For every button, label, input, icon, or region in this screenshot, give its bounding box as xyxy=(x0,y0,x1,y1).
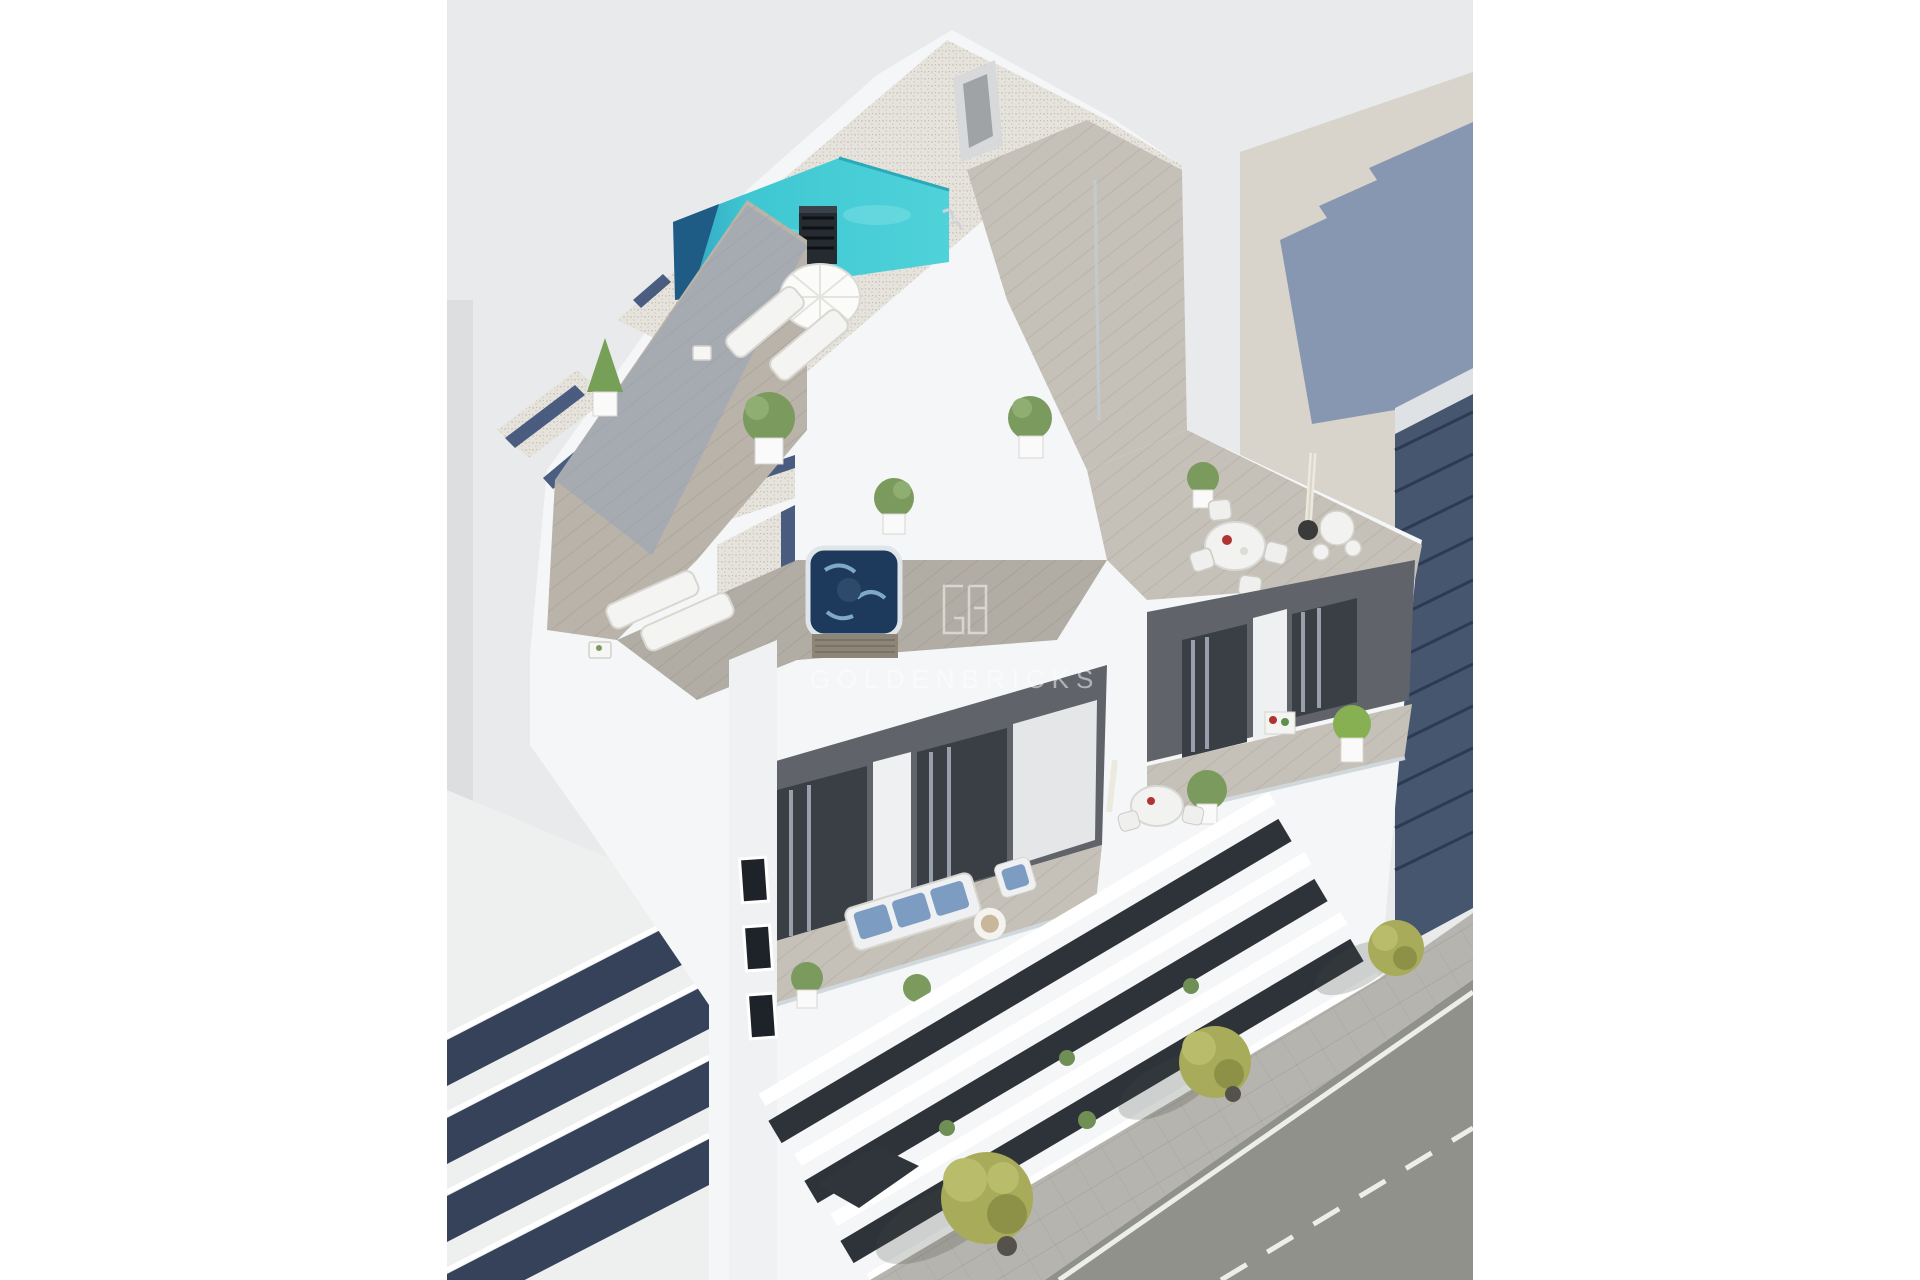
jacuzzi xyxy=(808,548,900,658)
tree-grate xyxy=(1225,1086,1241,1102)
architectural-render-photo: GOLDENBRICKS xyxy=(447,0,1473,1280)
render-canvas: GOLDENBRICKS xyxy=(0,0,1920,1280)
high-table xyxy=(1265,712,1295,734)
roof-access-door xyxy=(953,60,1003,162)
backdrop-wall-seam xyxy=(447,300,473,840)
wall-pier xyxy=(873,752,911,910)
watermark-text: GOLDENBRICKS xyxy=(810,664,1101,694)
render-scene: GOLDENBRICKS xyxy=(447,0,1473,1280)
wall-return xyxy=(1013,700,1097,866)
tree-grate xyxy=(997,1236,1017,1256)
table-centerpiece xyxy=(1222,535,1232,545)
stair-core xyxy=(729,640,777,1280)
